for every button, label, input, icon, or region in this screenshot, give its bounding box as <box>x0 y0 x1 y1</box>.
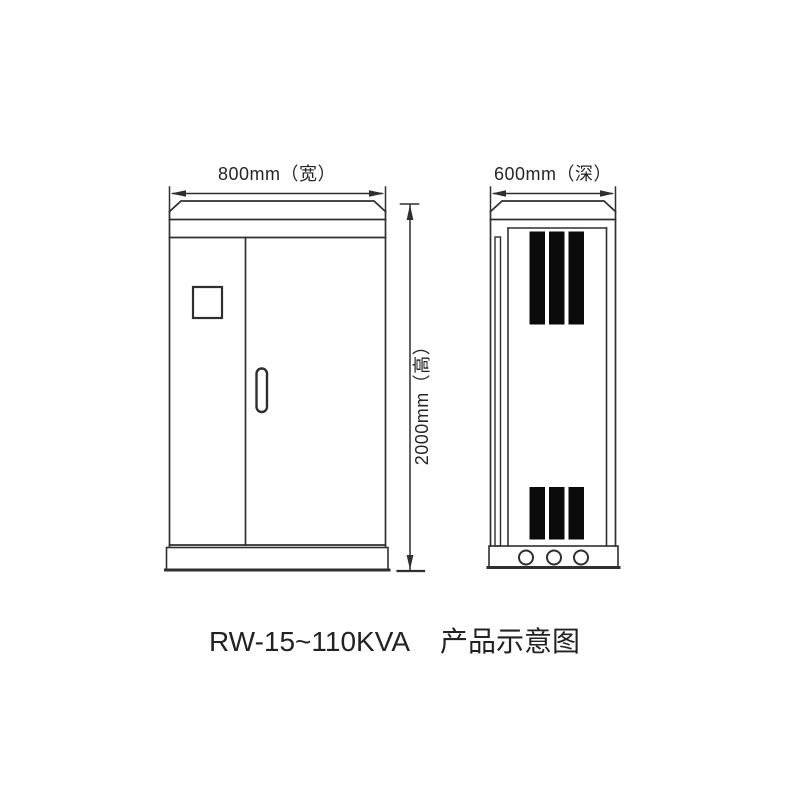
side-view: 600mm（深） <box>488 164 619 568</box>
side-depth-dimension: 600mm（深） <box>491 164 616 212</box>
front-width-dimension: 800mm（宽） <box>170 164 386 212</box>
base-hole <box>574 551 588 565</box>
side-top-cap <box>491 201 616 212</box>
caption-model: RW-15~110KVA <box>209 626 410 657</box>
front-width-arrowhead-left <box>171 190 187 197</box>
front-view: 800mm（宽） <box>166 164 390 570</box>
height-label: 2000mm（高） <box>412 337 432 466</box>
vent-bar <box>530 487 546 540</box>
vent-bar <box>530 232 546 325</box>
front-door-handle <box>257 369 268 413</box>
product-schematic-page: 800mm（宽） <box>0 0 800 800</box>
front-door-window <box>193 287 222 318</box>
front-cabinet-outline <box>170 201 386 546</box>
height-dimension: 2000mm（高） <box>398 204 433 571</box>
height-arrowhead-bottom <box>407 555 414 570</box>
caption: RW-15~110KVA 产品示意图 <box>209 626 580 657</box>
base-hole <box>547 551 561 565</box>
base-hole <box>519 551 533 565</box>
caption-title: 产品示意图 <box>440 626 580 657</box>
product-diagram: 800mm（宽） <box>0 0 800 800</box>
vent-bar <box>549 232 565 325</box>
side-depth-arrowhead-left <box>492 190 507 197</box>
side-top-vent-bars <box>530 232 585 325</box>
front-base-band <box>167 548 389 571</box>
front-width-label: 800mm（宽） <box>218 164 336 184</box>
height-arrowhead-top <box>407 205 414 220</box>
side-depth-arrowhead-right <box>600 190 615 197</box>
front-width-arrowhead-right <box>369 190 385 197</box>
side-front-edge-strip <box>495 237 501 546</box>
front-top-cap <box>170 201 386 212</box>
vent-bar <box>549 487 565 540</box>
vent-bar <box>569 232 585 325</box>
side-bottom-vent-bars <box>530 487 585 540</box>
vent-bar <box>569 487 585 540</box>
front-base <box>166 548 390 571</box>
side-base <box>488 546 619 568</box>
side-depth-label: 600mm（深） <box>494 164 612 184</box>
